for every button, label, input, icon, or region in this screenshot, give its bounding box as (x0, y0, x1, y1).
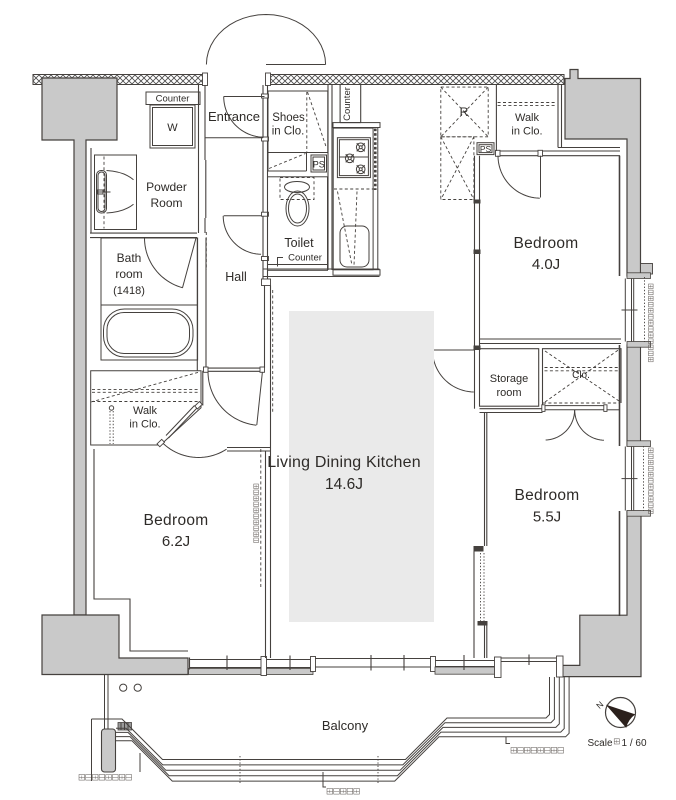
svg-text:Counter: Counter (156, 94, 190, 105)
svg-text:Bedroom: Bedroom (144, 512, 209, 529)
svg-text:Clo.: Clo. (572, 370, 590, 381)
svg-text:in Clo.: in Clo. (129, 419, 160, 431)
svg-text:14.6J: 14.6J (325, 476, 363, 493)
svg-text:Room: Room (150, 196, 182, 210)
svg-text:room: room (496, 387, 521, 399)
svg-text:Scale: Scale (587, 738, 612, 749)
svg-text:PS: PS (313, 160, 325, 170)
svg-text:Bedroom: Bedroom (515, 487, 580, 504)
svg-text:6.2J: 6.2J (162, 533, 190, 550)
svg-text:4.0J: 4.0J (532, 256, 560, 273)
svg-text:Storage: Storage (490, 373, 529, 385)
svg-text:Entrance: Entrance (208, 109, 260, 124)
svg-text:Toilet: Toilet (284, 236, 314, 250)
svg-text:R: R (460, 105, 469, 119)
svg-text:(1418): (1418) (113, 285, 145, 297)
svg-text:Balcony: Balcony (322, 718, 369, 733)
svg-text:in Clo.: in Clo. (511, 126, 542, 138)
svg-text:Bath: Bath (117, 251, 142, 265)
svg-text:Living Dining Kitchen: Living Dining Kitchen (267, 454, 421, 471)
svg-text:Counter: Counter (288, 253, 322, 264)
svg-text:Walk: Walk (133, 405, 158, 417)
svg-text:5.5J: 5.5J (533, 509, 561, 526)
svg-text:Hall: Hall (225, 270, 247, 284)
svg-text:PS: PS (480, 144, 492, 154)
svg-text:W: W (167, 122, 178, 134)
svg-text:Bedroom: Bedroom (514, 235, 579, 252)
svg-text:in Clo.: in Clo. (272, 126, 305, 138)
svg-text:Counter: Counter (342, 87, 353, 121)
svg-text:Shoes: Shoes (272, 112, 305, 124)
svg-text:1 / 60: 1 / 60 (622, 738, 647, 749)
svg-text:room: room (115, 267, 142, 281)
svg-text:Powder: Powder (146, 180, 187, 194)
svg-text:Walk: Walk (515, 112, 540, 124)
